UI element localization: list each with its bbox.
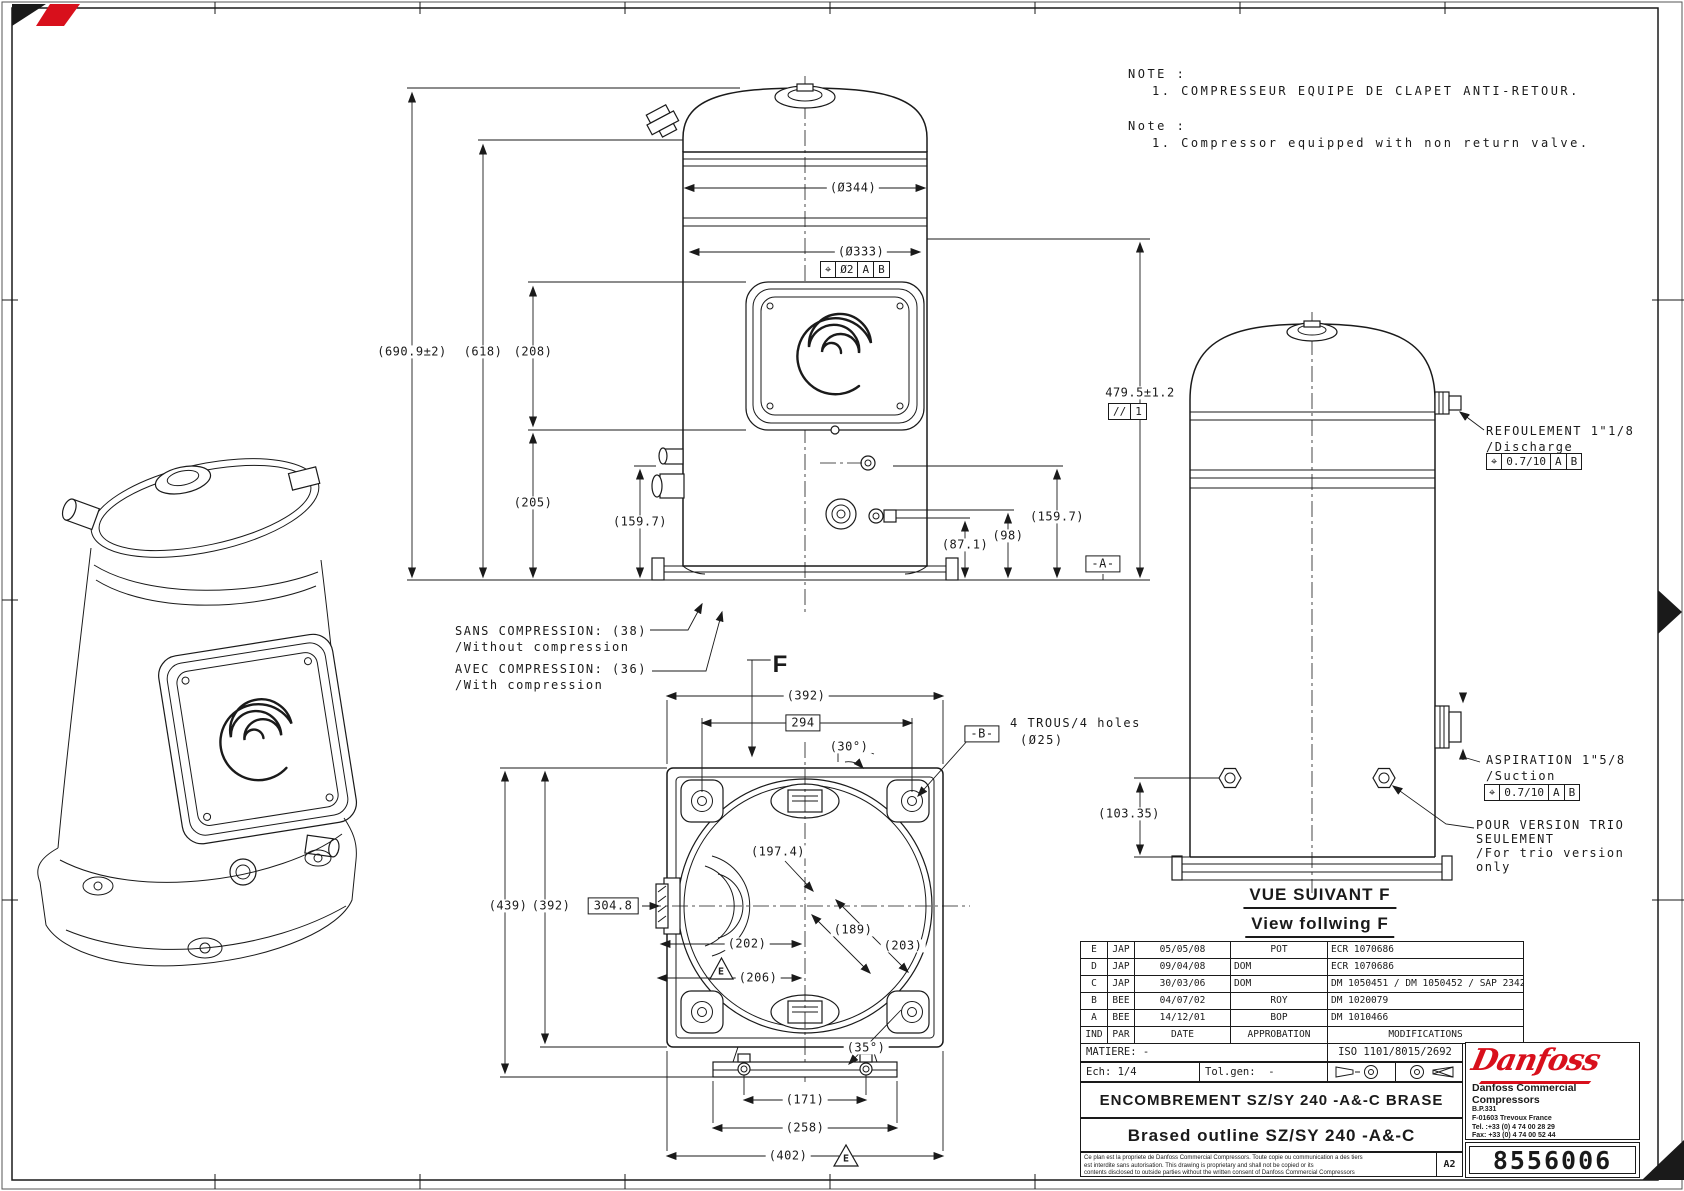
tol-value: 0.7/10 — [1501, 454, 1550, 469]
label-without-compression: /Without compression — [455, 640, 630, 654]
label-trio-2: SEULEMENT — [1476, 832, 1555, 846]
projection-symbol-cell-2 — [1395, 1063, 1462, 1081]
dim-439: (439) — [486, 899, 531, 912]
table-row: CJAP30/03/06DOMDM 1050451 / DM 1050452 /… — [1081, 976, 1524, 993]
datum-ref-b: B — [1564, 785, 1580, 800]
company-tel: Tel. :+33 (0) 4 74 00 28 29 — [1472, 1124, 1633, 1133]
matiere-row: MATIERE: - ISO 1101/8015/2692 — [1080, 1043, 1463, 1062]
dim-258: (258) — [783, 1121, 828, 1134]
dim-103: (103.35) — [1095, 807, 1163, 820]
dim-402: (402) — [766, 1149, 811, 1162]
note-line-fr: 1. COMPRESSEUR EQUIPE DE CLAPET ANTI-RET… — [1152, 84, 1580, 98]
view-title-fr: VUE SUIVANT F — [1243, 885, 1396, 909]
projection-symbol-cell-1 — [1327, 1063, 1395, 1081]
projection-symbol-icon — [1401, 1064, 1457, 1080]
dim-189: (189) — [831, 923, 876, 936]
table-header-row: INDPARDATEAPPROBATIONMODIFICATIONS — [1081, 1027, 1524, 1044]
title-fr-row: ENCOMBREMENT SZ/SY 240 -A&-C BRASE — [1080, 1082, 1463, 1118]
datum-ref-a: A — [857, 262, 873, 277]
position-icon: ⌖ — [821, 262, 835, 277]
dim-height-total: (690.9±2) — [374, 345, 450, 358]
drawing-number: 8556006 — [1493, 1148, 1612, 1173]
danfoss-logo-underline — [1479, 1081, 1592, 1084]
revision-table: EJAP05/05/08POTECR 1070686 DJAP09/04/08D… — [1080, 941, 1524, 1044]
front-view-linework — [407, 76, 1150, 671]
label-sans-compression: SANS COMPRESSION: (38) — [455, 624, 647, 638]
dim-height-205: (205) — [511, 496, 556, 509]
dim-87: (87.1) — [939, 538, 991, 551]
parallelism-tolerance-frame: //1 — [1108, 403, 1147, 420]
tol-value: 1 — [1130, 404, 1146, 419]
datum-ref-b: B — [873, 262, 889, 277]
company-address: F-01603 Trevoux France — [1472, 1115, 1633, 1124]
dim-203: (203) — [881, 939, 926, 952]
note-title-en: Note : — [1128, 119, 1186, 133]
legal-line-1: Ce plan est la propriete de Danfoss Comm… — [1084, 1155, 1433, 1163]
legal-line-2: est interdite sans autorisation. This dr… — [1084, 1163, 1433, 1171]
front-top-fitting — [643, 103, 682, 141]
parallel-icon: // — [1109, 404, 1130, 419]
dim-294-basic: 294 — [785, 714, 820, 731]
position-icon: ⌖ — [1485, 785, 1499, 800]
datum-a-flag: -A- — [1085, 555, 1120, 572]
dim-3048-basic: 304.8 — [588, 897, 639, 914]
label-suction-en: /Suction — [1486, 769, 1556, 783]
position-tolerance-frame: ⌖Ø2AB — [820, 261, 890, 278]
drawing-sheet: .ol{stroke:#1a1a1a;stroke-width:1.5;fill… — [0, 0, 1684, 1191]
dim-height-208: (208) — [511, 345, 556, 358]
datum-e-flag-2: E — [843, 1154, 849, 1165]
dim-98: (98) — [990, 529, 1027, 542]
company-fax: Fax: +33 (0) 4 74 00 52 44 — [1472, 1132, 1633, 1141]
dim-angle-30: (30°) — [827, 740, 872, 753]
iso-standard-cell: ISO 1101/8015/2692 — [1327, 1044, 1462, 1061]
bottom-view-linework — [500, 660, 970, 1166]
legal-row: Ce plan est la propriete de Danfoss Comm… — [1080, 1152, 1463, 1177]
label-holes-dia: (Ø25) — [1020, 733, 1064, 747]
iso-view-linework — [38, 441, 360, 966]
note-title-fr: NOTE : — [1128, 67, 1186, 81]
dim-1974: (197.4) — [748, 845, 808, 858]
company-bp: B.P.331 — [1472, 1106, 1633, 1115]
label-with-compression: /With compression — [455, 678, 603, 692]
label-discharge-fr: REFOULEMENT 1"1/8 — [1486, 424, 1634, 438]
dim-392-width: (392) — [784, 689, 829, 702]
scale-row: Ech: 1/4 Tol.gen: - — [1080, 1062, 1463, 1082]
suction-tolerance-frame: ⌖0.7/10AB — [1484, 784, 1580, 801]
dim-height-479: 479.5±1.2 — [1102, 386, 1178, 399]
legal-text: Ce plan est la propriete de Danfoss Comm… — [1081, 1153, 1436, 1176]
note-line-en: 1. Compressor equipped with non return v… — [1152, 136, 1590, 150]
matiere-cell: MATIERE: - — [1081, 1044, 1327, 1061]
side-view-linework — [1134, 312, 1484, 893]
dim-206: (206) — [736, 971, 781, 984]
discharge-tolerance-frame: ⌖0.7/10AB — [1486, 453, 1582, 470]
right-center-mark — [1658, 590, 1682, 634]
view-arrow-f: F — [771, 651, 790, 679]
tol-value: Ø2 — [835, 262, 857, 277]
datum-ref-a: A — [1548, 785, 1564, 800]
scale-cell: Ech: 1/4 — [1081, 1063, 1199, 1081]
drawing-title-en: Brased outline SZ/SY 240 -A&-C — [1128, 1127, 1416, 1144]
drawing-title-fr: ENCOMBREMENT SZ/SY 240 -A&-C BRASE — [1100, 1093, 1444, 1108]
view-title-en: View follwing F — [1245, 914, 1394, 938]
dim-202: (202) — [725, 937, 770, 950]
title-en-row: Brased outline SZ/SY 240 -A&-C — [1080, 1118, 1463, 1152]
dim-height-618: (618) — [461, 345, 506, 358]
company-name-2: Compressors — [1472, 1094, 1633, 1106]
label-trio-4: only — [1476, 860, 1511, 874]
tol-value: 0.7/10 — [1499, 785, 1548, 800]
table-row: EJAP05/05/08POTECR 1070686 — [1081, 942, 1524, 959]
dim-392-vert: (392) — [529, 899, 574, 912]
drawing-number-box: 8556006 — [1465, 1142, 1640, 1178]
legal-line-3: contents disclosed to outside parties wi… — [1084, 1170, 1433, 1178]
label-suction-fr: ASPIRATION 1"5/8 — [1486, 753, 1626, 767]
tol-gen-value: - — [1268, 1067, 1274, 1078]
label-trio-3: /For trio version — [1476, 846, 1624, 860]
datum-ref-a: A — [1550, 454, 1566, 469]
datum-b-flag: -B- — [964, 725, 999, 742]
dim-171: (171) — [783, 1093, 828, 1106]
sheet-format-cell: A2 — [1436, 1153, 1462, 1176]
projection-symbol-icon — [1333, 1064, 1390, 1080]
label-4-holes: 4 TROUS/4 holes — [1010, 716, 1141, 730]
table-row: DJAP09/04/08DOMECR 1070686 — [1081, 959, 1524, 976]
datum-ref-b: B — [1566, 454, 1582, 469]
table-row: BBEE04/07/02ROYDM 1020079 — [1081, 993, 1524, 1010]
table-row: ABEE14/12/01BOPDM 1010466 — [1081, 1010, 1524, 1027]
datum-e-flag-1: E — [718, 967, 724, 978]
dim-159-left: (159.7) — [610, 515, 670, 528]
dim-angle-35: (35°) — [844, 1041, 889, 1054]
dim-dia-344: (Ø344) — [827, 181, 879, 194]
bottom-right-mark — [1642, 1140, 1684, 1180]
label-trio-1: POUR VERSION TRIO — [1476, 818, 1624, 832]
danfoss-logo: Danfoss — [1469, 1046, 1636, 1076]
company-block: Danfoss Danfoss Commercial Compressors B… — [1465, 1042, 1640, 1140]
position-icon: ⌖ — [1487, 454, 1501, 469]
dim-159-right: (159.7) — [1027, 510, 1087, 523]
label-avec-compression: AVEC COMPRESSION: (36) — [455, 662, 647, 676]
dim-dia-333: (Ø333) — [835, 245, 887, 258]
tolerance-general-cell: Tol.gen: - — [1199, 1063, 1327, 1081]
tol-gen-label: Tol.gen: — [1205, 1067, 1256, 1078]
